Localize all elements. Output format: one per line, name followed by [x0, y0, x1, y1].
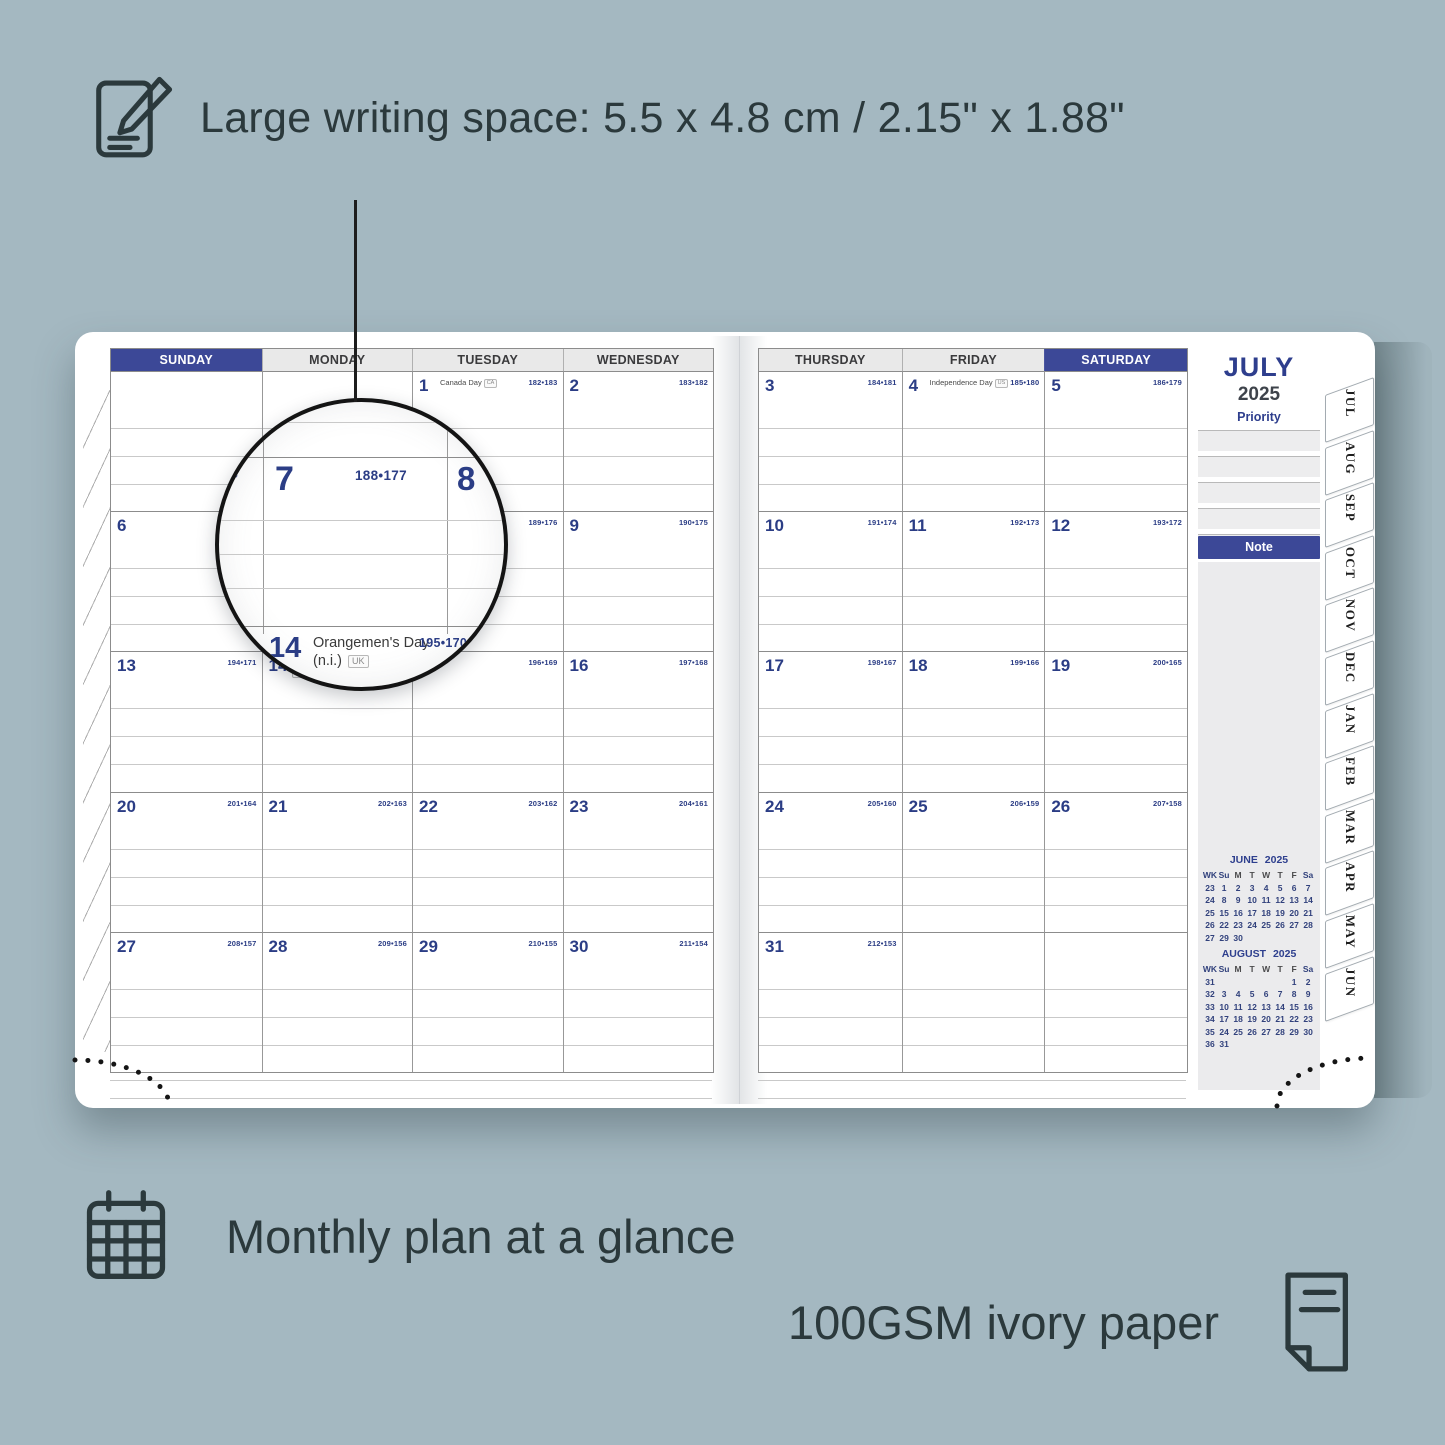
weekday-header-saturday: SATURDAY	[1044, 349, 1187, 371]
paper-sheet-icon	[1267, 1266, 1353, 1378]
day-of-year-code: 199•166	[1010, 658, 1039, 667]
rule-line	[564, 428, 714, 429]
lens-code-7: 188•177	[355, 468, 407, 483]
day-of-year-code: 186•179	[1153, 378, 1182, 387]
mini-calendar-row: 323456789	[1203, 988, 1315, 1001]
mini-calendar-cell: 29	[1217, 932, 1231, 945]
mini-calendar-row: 2622232425262728	[1203, 919, 1315, 932]
weekday-header-friday: FRIDAY	[902, 349, 1045, 371]
mini-calendar-header: Sa	[1301, 963, 1315, 976]
rule-line	[564, 484, 714, 485]
month-tab-label: AUG	[1342, 442, 1358, 475]
day-cell-12: 193•17212	[1044, 511, 1187, 651]
rule-line	[263, 849, 413, 850]
mini-calendar-cell: 18	[1259, 907, 1273, 920]
rule-line	[903, 484, 1045, 485]
day-cell-30: 211•15430	[563, 932, 714, 1072]
rule-line	[564, 624, 714, 625]
rule-line	[263, 708, 413, 709]
day-cell-31: 212•15331	[759, 932, 902, 1072]
day-number: 23	[570, 797, 589, 817]
month-tab-label: FEB	[1342, 757, 1358, 787]
rule-line	[413, 877, 563, 878]
rule-line	[413, 736, 563, 737]
day-of-year-code: 192•173	[1010, 518, 1039, 527]
mini-calendar-cell: 15	[1287, 1001, 1301, 1014]
day-cell-2: 183•1822	[563, 371, 714, 511]
mini-calendar-row: 3112	[1203, 976, 1315, 989]
mini-calendar-cell	[1301, 932, 1315, 945]
annotation-paper-text: 100GSM ivory paper	[788, 1295, 1219, 1350]
overflow-rule-line	[110, 1080, 712, 1081]
mini-calendar-cell: 22	[1287, 1013, 1301, 1026]
day-of-year-code: 203•162	[528, 799, 557, 808]
day-number: 21	[269, 797, 288, 817]
day-cell-19: 200•16519	[1044, 651, 1187, 791]
day-cell-29: 210•15529	[412, 932, 563, 1072]
mini-calendar-header: Sa	[1301, 869, 1315, 882]
mini-calendar-cell: 18	[1231, 1013, 1245, 1026]
mini-calendar-row: 3310111213141516	[1203, 1001, 1315, 1014]
mini-calendar-header-row: WKSuMTWTFSa	[1203, 869, 1315, 882]
mini-calendar-header: WK	[1203, 869, 1217, 882]
mini-calendar-cell: 7	[1301, 882, 1315, 895]
rule-line	[111, 877, 262, 878]
rule-line	[759, 596, 902, 597]
day-of-year-code: 200•165	[1153, 658, 1182, 667]
rule-line	[111, 428, 262, 429]
mini-calendar-title: AUGUST 2025	[1198, 948, 1320, 960]
mini-calendar-cell: 29	[1287, 1026, 1301, 1039]
mini-calendar-cell: 10	[1217, 1001, 1231, 1014]
flag-badge: CA	[484, 379, 498, 388]
day-of-year-code: 198•167	[868, 658, 897, 667]
day-cell-3: 184•1813	[759, 371, 902, 511]
rule-line	[1045, 877, 1187, 878]
rule-line	[111, 849, 262, 850]
rule-line	[564, 849, 714, 850]
mini-calendar-cell: 19	[1273, 907, 1287, 920]
day-cell-21: 202•16321	[262, 792, 413, 932]
mini-calendar-cell: 3	[1217, 988, 1231, 1001]
day-number: 29	[419, 937, 438, 957]
month-tab-label: NOV	[1342, 599, 1358, 632]
mini-calendar-row: 3417181920212223	[1203, 1013, 1315, 1026]
rule-line	[413, 849, 563, 850]
mini-calendar-cell	[1245, 1038, 1259, 1051]
magnifier-lens: 78 7 188•177 8 14 Orangemen's Day (n.i.)…	[215, 398, 508, 691]
rule-line	[111, 764, 262, 765]
day-cell-23: 204•16123	[563, 792, 714, 932]
mini-calendar-header: M	[1231, 869, 1245, 882]
flag-badge: UK	[348, 655, 369, 668]
rule-line	[1045, 1017, 1187, 1018]
day-of-year-code: 204•161	[679, 799, 708, 808]
mini-calendar: AUGUST 2025WKSuMTWTFSa311232345678933101…	[1198, 948, 1320, 1051]
mini-calendar-cell: 5	[1273, 882, 1287, 895]
day-of-year-code: 184•181	[868, 378, 897, 387]
rule-line	[759, 1017, 902, 1018]
day-of-year-code: 185•180	[1010, 378, 1039, 387]
mini-calendar-cell: 28	[1273, 1026, 1287, 1039]
mini-calendar: JUNE 2025WKSuMTWTFSa23123456724891011121…	[1198, 854, 1320, 944]
mini-calendar-cell: 13	[1287, 894, 1301, 907]
day-of-year-code: 206•159	[1010, 799, 1039, 808]
mini-calendar-cell: 17	[1245, 907, 1259, 920]
day-number: 18	[909, 656, 928, 676]
annotation-paper: 100GSM ivory paper	[788, 1266, 1353, 1378]
mini-calendar-cell: 6	[1259, 988, 1273, 1001]
day-number: 20	[117, 797, 136, 817]
rule-line	[903, 877, 1045, 878]
used-pages-hatching	[83, 390, 113, 1052]
rule-line	[413, 708, 563, 709]
mini-calendar-cell: 24	[1245, 919, 1259, 932]
rule-line	[903, 456, 1045, 457]
day-cell-16: 197•16816	[563, 651, 714, 791]
rule-line	[413, 764, 563, 765]
day-number: 31	[765, 937, 784, 957]
flag-badge: US	[995, 379, 1009, 388]
day-number: 4	[909, 376, 918, 396]
mini-calendar-cell: 3	[1245, 882, 1259, 895]
day-number: 19	[1051, 656, 1070, 676]
mini-calendar-cell: 12	[1273, 894, 1287, 907]
day-cell-9: 190•1759	[563, 511, 714, 651]
day-cell-24: 205•16024	[759, 792, 902, 932]
mini-calendar-row: 231234567	[1203, 882, 1315, 895]
rule-line	[759, 1045, 902, 1046]
rule-line	[263, 736, 413, 737]
rule-line	[1045, 736, 1187, 737]
rule-line	[564, 736, 714, 737]
mini-calendar-cell: 23	[1203, 882, 1217, 895]
rule-line	[1045, 1045, 1187, 1046]
day-cell-empty	[902, 932, 1045, 1072]
note-header: Note	[1198, 536, 1320, 559]
mini-calendar-cell	[1217, 976, 1231, 989]
mini-calendar-header: W	[1259, 869, 1273, 882]
rule-line	[413, 989, 563, 990]
mini-calendar-header: T	[1245, 963, 1259, 976]
mini-calendar-header: T	[1245, 869, 1259, 882]
rule-line	[1045, 484, 1187, 485]
mini-calendar-cell: 4	[1259, 882, 1273, 895]
day-of-year-code: 207•158	[1153, 799, 1182, 808]
rule-line	[564, 877, 714, 878]
priority-line	[1198, 508, 1320, 529]
day-number: 6	[117, 516, 126, 536]
rule-line	[263, 989, 413, 990]
mini-calendar-cell: 16	[1231, 907, 1245, 920]
mini-calendar-header-row: WKSuMTWTFSa	[1203, 963, 1315, 976]
rule-line	[759, 624, 902, 625]
rule-line	[903, 849, 1045, 850]
notepad-pencil-icon	[84, 70, 176, 166]
rule-line	[564, 905, 714, 906]
mini-calendar-row: 3524252627282930	[1203, 1026, 1315, 1039]
rule-line	[564, 568, 714, 569]
priority-line	[1198, 482, 1320, 503]
lens-day-14: 14	[269, 632, 301, 665]
day-of-year-code: 208•157	[227, 939, 256, 948]
month-tab-label: DEC	[1342, 652, 1358, 684]
day-cell-26: 207•15826	[1044, 792, 1187, 932]
mini-calendar-cell: 22	[1217, 919, 1231, 932]
mini-calendar-cell: 34	[1203, 1013, 1217, 1026]
day-cell-25: 206•15925	[902, 792, 1045, 932]
mini-calendar-cell: 20	[1259, 1013, 1273, 1026]
day-number: 1	[419, 376, 428, 396]
rule-line	[903, 428, 1045, 429]
rule-line	[263, 1045, 413, 1046]
holiday-label: Canada DayCA	[440, 378, 497, 388]
day-of-year-code: 202•163	[378, 799, 407, 808]
rule-line	[1045, 708, 1187, 709]
mini-calendar-cell: 32	[1203, 988, 1217, 1001]
overflow-rule-line	[110, 1098, 712, 1099]
mini-calendar-cell: 27	[1259, 1026, 1273, 1039]
weekday-header-tuesday: TUESDAY	[412, 349, 563, 371]
day-number: 16	[570, 656, 589, 676]
mini-calendar-cell: 8	[1287, 988, 1301, 1001]
mini-calendar-cell: 26	[1245, 1026, 1259, 1039]
mini-calendar-table: WKSuMTWTFSa31123234567893310111213141516…	[1203, 963, 1315, 1051]
mini-calendar-cell: 24	[1217, 1026, 1231, 1039]
rule-line	[564, 989, 714, 990]
month-tab-label: JAN	[1342, 705, 1358, 735]
mini-calendar-cell: 5	[1245, 988, 1259, 1001]
annotation-monthly-plan: Monthly plan at a glance	[78, 1186, 736, 1286]
weekday-header-wednesday: WEDNESDAY	[563, 349, 714, 371]
day-of-year-code: 196•169	[528, 658, 557, 667]
rule-line	[759, 764, 902, 765]
right-page-calendar-grid: THURSDAYFRIDAYSATURDAY184•1813185•1804In…	[758, 348, 1188, 1073]
day-cell-5: 186•1795	[1044, 371, 1187, 511]
lens-code-fragment: 78	[223, 466, 238, 481]
mini-calendar-cell: 26	[1203, 919, 1217, 932]
rule-line	[903, 1045, 1045, 1046]
rule-line	[903, 708, 1045, 709]
day-cell-10: 191•17410	[759, 511, 902, 651]
day-number: 13	[117, 656, 136, 676]
rule-line	[413, 1045, 563, 1046]
mini-calendar-cell: 8	[1217, 894, 1231, 907]
rule-line	[903, 624, 1045, 625]
day-cell-20: 201•16420	[111, 792, 262, 932]
month-title: JULY	[1196, 352, 1322, 383]
rule-line	[1045, 428, 1187, 429]
day-number: 3	[765, 376, 774, 396]
lens-code-14: 195•170	[419, 636, 467, 650]
rule-line	[759, 736, 902, 737]
mini-calendar-cell: 30	[1301, 1026, 1315, 1039]
rule-line	[564, 596, 714, 597]
day-cell-13: 194•17113	[111, 651, 262, 791]
rule-line	[111, 1045, 262, 1046]
mini-calendar-cell: 4	[1231, 988, 1245, 1001]
priority-line	[1198, 456, 1320, 477]
rule-line	[111, 905, 262, 906]
calendar-grid-icon	[78, 1186, 174, 1286]
day-cell-11: 192•17311	[902, 511, 1045, 651]
day-number: 26	[1051, 797, 1070, 817]
mini-calendar-header: T	[1273, 963, 1287, 976]
mini-calendar-cell: 23	[1231, 919, 1245, 932]
holiday-label: Independence DayUS	[930, 378, 1009, 388]
day-of-year-code: 190•175	[679, 518, 708, 527]
weekday-header-thursday: THURSDAY	[759, 349, 902, 371]
day-number: 27	[117, 937, 136, 957]
day-cell-18: 199•16618	[902, 651, 1045, 791]
day-of-year-code: 194•171	[227, 658, 256, 667]
day-of-year-code: 209•156	[378, 939, 407, 948]
mini-calendar-cell	[1287, 932, 1301, 945]
rule-line	[759, 708, 902, 709]
mini-calendar-cell	[1259, 976, 1273, 989]
mini-calendar-cell: 25	[1231, 1026, 1245, 1039]
day-cell-28: 209•15628	[262, 932, 413, 1072]
dotted-corner-arc-left	[72, 1048, 182, 1110]
day-number: 12	[1051, 516, 1070, 536]
mini-calendar-cell: 2	[1301, 976, 1315, 989]
rule-line	[564, 764, 714, 765]
day-cell-22: 203•16222	[412, 792, 563, 932]
rule-line	[903, 736, 1045, 737]
day-number: 30	[570, 937, 589, 957]
mini-calendar-cell: 9	[1231, 894, 1245, 907]
mini-calendar-row: 272930	[1203, 932, 1315, 945]
mini-calendar-cell	[1273, 932, 1287, 945]
day-of-year-code: 191•174	[868, 518, 897, 527]
mini-calendar-header: T	[1273, 869, 1287, 882]
mini-calendar-cell: 7	[1273, 988, 1287, 1001]
leader-line	[354, 200, 357, 402]
rule-line	[111, 989, 262, 990]
mini-calendar-cell: 25	[1259, 919, 1273, 932]
rule-line	[1045, 624, 1187, 625]
mini-calendar-header: F	[1287, 869, 1301, 882]
rule-line	[759, 484, 902, 485]
rule-line	[1045, 989, 1187, 990]
rule-line	[1045, 596, 1187, 597]
day-of-year-code: 197•168	[679, 658, 708, 667]
page-edge-shadow	[1374, 342, 1432, 1098]
mini-calendar-cell: 14	[1273, 1001, 1287, 1014]
mini-calendar-header: F	[1287, 963, 1301, 976]
mini-calendar-cell: 20	[1287, 907, 1301, 920]
rule-line	[903, 596, 1045, 597]
mini-calendar-cell: 30	[1231, 932, 1245, 945]
dotted-corner-arc-right	[1268, 1048, 1378, 1110]
day-number: 25	[909, 797, 928, 817]
rule-line	[903, 905, 1045, 906]
day-number: 11	[909, 516, 927, 536]
rule-line	[111, 1017, 262, 1018]
month-tab-label: APR	[1342, 862, 1358, 893]
mini-calendar-cell: 6	[1287, 882, 1301, 895]
mini-calendar-cell: 11	[1231, 1001, 1245, 1014]
day-number: 24	[765, 797, 784, 817]
mini-calendar-cell: 33	[1203, 1001, 1217, 1014]
mini-calendar-cell: 15	[1217, 907, 1231, 920]
rule-line	[759, 905, 902, 906]
mini-calendar-cell: 25	[1203, 907, 1217, 920]
lens-day-8: 8	[457, 460, 475, 498]
day-cell-4: 185•1804Independence DayUS	[902, 371, 1045, 511]
day-of-year-code: 183•182	[679, 378, 708, 387]
mini-calendar-cell	[1259, 932, 1273, 945]
day-number: 17	[765, 656, 784, 676]
rule-line	[759, 989, 902, 990]
rule-line	[1045, 568, 1187, 569]
rule-line	[759, 877, 902, 878]
day-number: 5	[1051, 376, 1060, 396]
mini-calendar-cell: 17	[1217, 1013, 1231, 1026]
mini-calendar-header: M	[1231, 963, 1245, 976]
mini-calendar-cell: 9	[1301, 988, 1315, 1001]
mini-calendar-cell: 27	[1287, 919, 1301, 932]
rule-line	[903, 568, 1045, 569]
mini-calendar-cell: 35	[1203, 1026, 1217, 1039]
priority-line	[1198, 430, 1320, 451]
mini-calendar-cell: 19	[1245, 1013, 1259, 1026]
mini-calendar-cell: 23	[1301, 1013, 1315, 1026]
day-cell-empty	[1044, 932, 1187, 1072]
rule-line	[1045, 905, 1187, 906]
lens-holiday-label: Orangemen's Day (n.i.) UK	[313, 634, 429, 670]
rule-line	[1045, 764, 1187, 765]
day-number: 9	[570, 516, 579, 536]
month-tab-label: OCT	[1342, 547, 1358, 580]
rule-line	[263, 877, 413, 878]
lens-day-7: 7	[275, 460, 294, 499]
mini-calendar-cell	[1245, 976, 1259, 989]
mini-calendar-table: WKSuMTWTFSa23123456724891011121314251516…	[1203, 869, 1315, 944]
rule-line	[111, 708, 262, 709]
mini-calendar-cell	[1273, 976, 1287, 989]
rule-line	[564, 1017, 714, 1018]
day-number: 10	[765, 516, 784, 536]
rule-line	[903, 764, 1045, 765]
day-of-year-code: 189•176	[528, 518, 557, 527]
mini-calendar-cell: 2	[1231, 882, 1245, 895]
product-image: Large writing space: 5.5 x 4.8 cm / 2.15…	[0, 0, 1445, 1445]
mini-calendar-row: 24891011121314	[1203, 894, 1315, 907]
rule-line	[759, 849, 902, 850]
rule-line	[263, 1017, 413, 1018]
day-cell-17: 198•16717	[759, 651, 902, 791]
mini-calendar-cell: 12	[1245, 1001, 1259, 1014]
year-title: 2025	[1196, 384, 1322, 406]
mini-calendar-cell	[1231, 976, 1245, 989]
rule-line	[759, 456, 902, 457]
mini-calendar-cell: 27	[1203, 932, 1217, 945]
mini-calendar-header: Su	[1217, 963, 1231, 976]
mini-calendar-cell: 1	[1287, 976, 1301, 989]
day-of-year-code: 182•183	[528, 378, 557, 387]
day-of-year-code: 211•154	[679, 939, 708, 948]
mini-calendar-cell: 36	[1203, 1038, 1217, 1051]
mini-calendar-title: JUNE 2025	[1198, 854, 1320, 866]
rule-line	[564, 1045, 714, 1046]
overflow-rule-line	[758, 1080, 1186, 1081]
mini-calendar-cell: 21	[1273, 1013, 1287, 1026]
rule-line	[413, 905, 563, 906]
rule-line	[759, 568, 902, 569]
mini-calendar-cell	[1245, 932, 1259, 945]
rule-line	[564, 708, 714, 709]
